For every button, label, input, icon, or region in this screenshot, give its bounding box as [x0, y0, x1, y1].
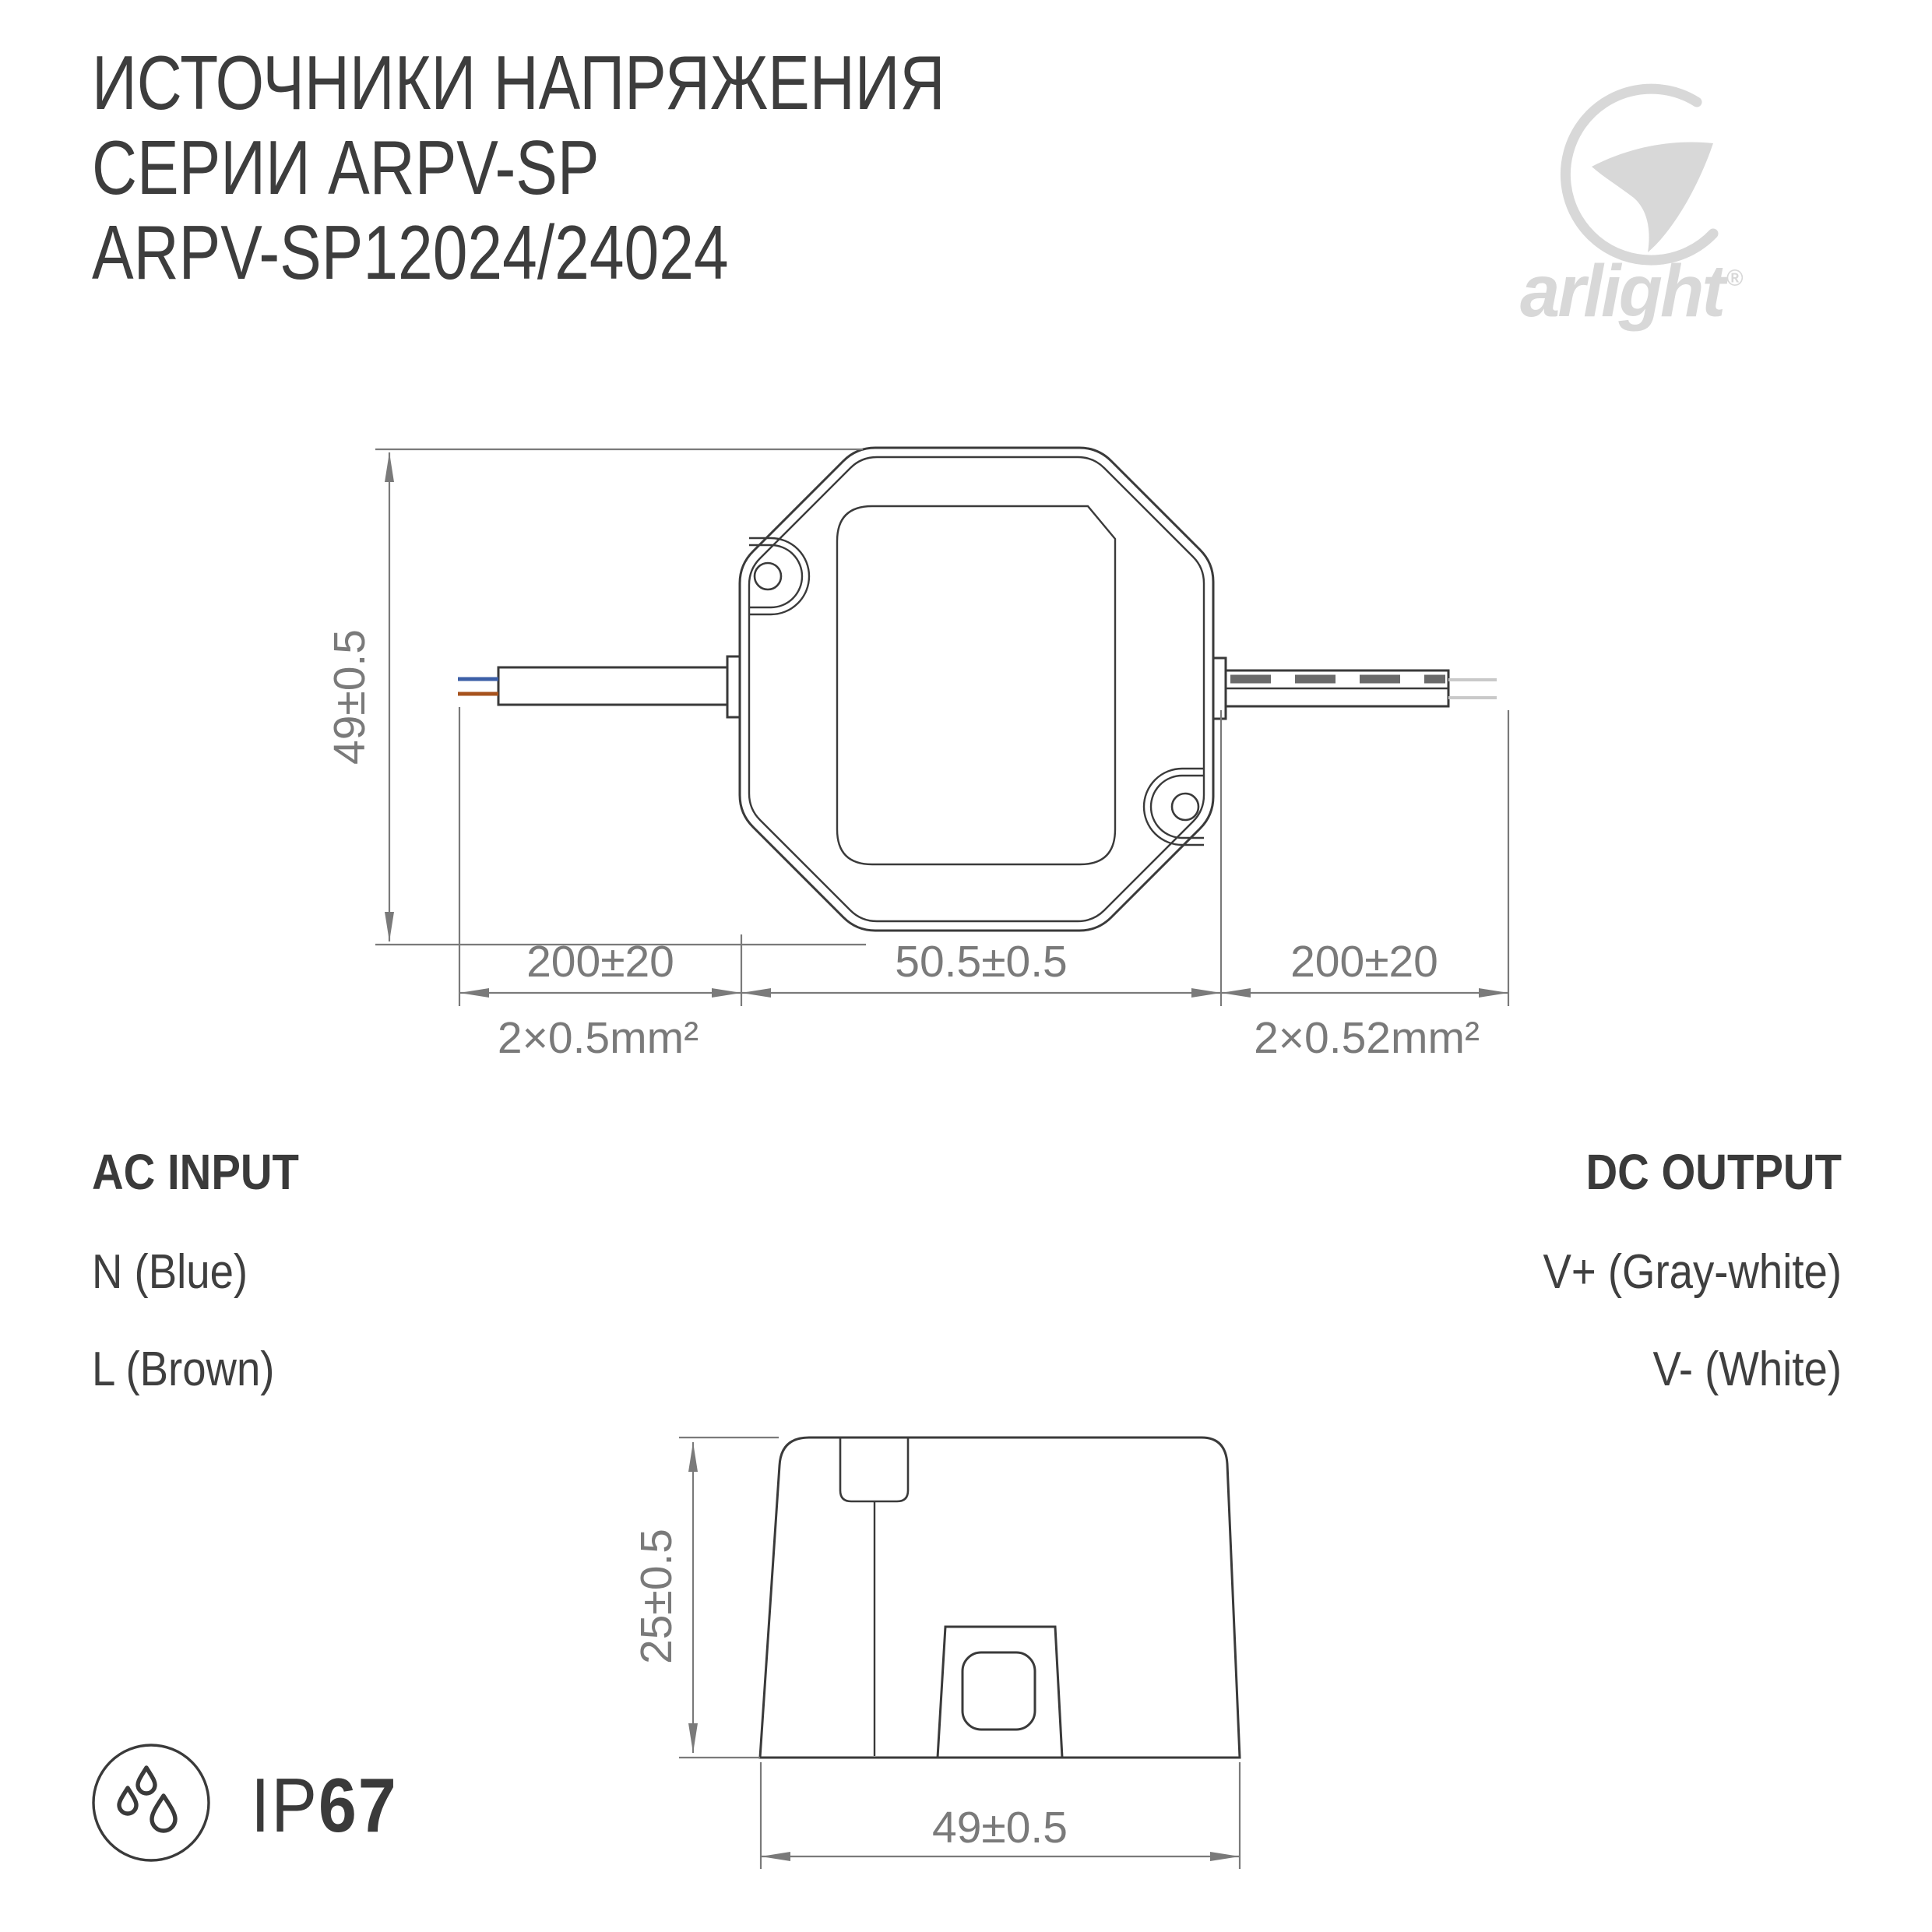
device-body-outline — [740, 448, 1213, 931]
technical-drawing: 49±0.5 200±20 50.5±0.5 200±20 2×0.5mm² 2… — [0, 0, 1932, 1932]
ear-inner-arc — [1151, 776, 1204, 838]
drop-small-left — [119, 1788, 136, 1814]
dim-right-wire-label: 200±20 — [1290, 937, 1438, 987]
side-dim-width-label: 49±0.5 — [932, 1803, 1068, 1853]
dc-output-vplus: V+ (Gray-white) — [1362, 1244, 1842, 1300]
ac-input-block: AC INPUT N (Blue) L (Brown) — [92, 1143, 572, 1397]
cable-sheath — [498, 667, 727, 705]
screw-hole — [755, 563, 781, 589]
ear-outer-arc — [749, 538, 809, 614]
badge-circle — [93, 1745, 209, 1860]
top-tab — [840, 1438, 908, 1501]
dc-output-heading: DC OUTPUT — [1362, 1143, 1842, 1201]
top-view-drawing — [458, 448, 1497, 931]
cable-gland — [727, 656, 740, 717]
dim-height-label: 49±0.5 — [325, 629, 375, 765]
ip-prefix: IP — [251, 1762, 318, 1848]
boss-hole — [962, 1652, 1035, 1730]
side-view-dimension-labels: 25±0.5 49±0.5 — [632, 1529, 1068, 1853]
drop-small-top — [138, 1768, 155, 1793]
dc-output-vminus: V- (White) — [1362, 1342, 1842, 1397]
ac-input-neutral: N (Blue) — [92, 1244, 572, 1300]
screw-hole — [1172, 794, 1198, 820]
cable-boss — [938, 1627, 1062, 1758]
ip67-badge-icon — [93, 1745, 209, 1860]
ear-inner-arc — [749, 545, 802, 607]
device-body-inner-outline — [749, 457, 1204, 921]
side-dim-height-label: 25±0.5 — [632, 1529, 681, 1664]
drop-large-bottom — [152, 1796, 175, 1831]
cable-gland — [1213, 658, 1226, 719]
water-drops-icon — [119, 1768, 175, 1831]
top-view-dimensions — [375, 449, 1508, 1006]
datasheet-page: { "title": { "line1": "ИСТОЧНИКИ НАПРЯЖЕ… — [0, 0, 1932, 1932]
ip-rating: 67 — [318, 1762, 398, 1848]
ac-input-cable — [458, 656, 740, 717]
dc-output-cable — [1213, 658, 1497, 719]
ac-input-line: L (Brown) — [92, 1342, 572, 1397]
side-body-outline — [760, 1438, 1240, 1758]
mounting-ear-top-left — [749, 538, 809, 614]
dc-output-block: DC OUTPUT V+ (Gray-white) V- (White) — [1362, 1143, 1842, 1397]
right-wire-spec-label: 2×0.52mm² — [1254, 1013, 1480, 1063]
left-wire-spec-label: 2×0.5mm² — [498, 1013, 699, 1063]
ac-input-heading: AC INPUT — [92, 1143, 572, 1201]
side-view-drawing — [760, 1438, 1240, 1758]
dim-body-width-label: 50.5±0.5 — [895, 937, 1067, 987]
label-area — [837, 506, 1115, 864]
ip67-label: IP67 — [251, 1761, 398, 1849]
dim-left-wire-label: 200±20 — [526, 937, 674, 987]
